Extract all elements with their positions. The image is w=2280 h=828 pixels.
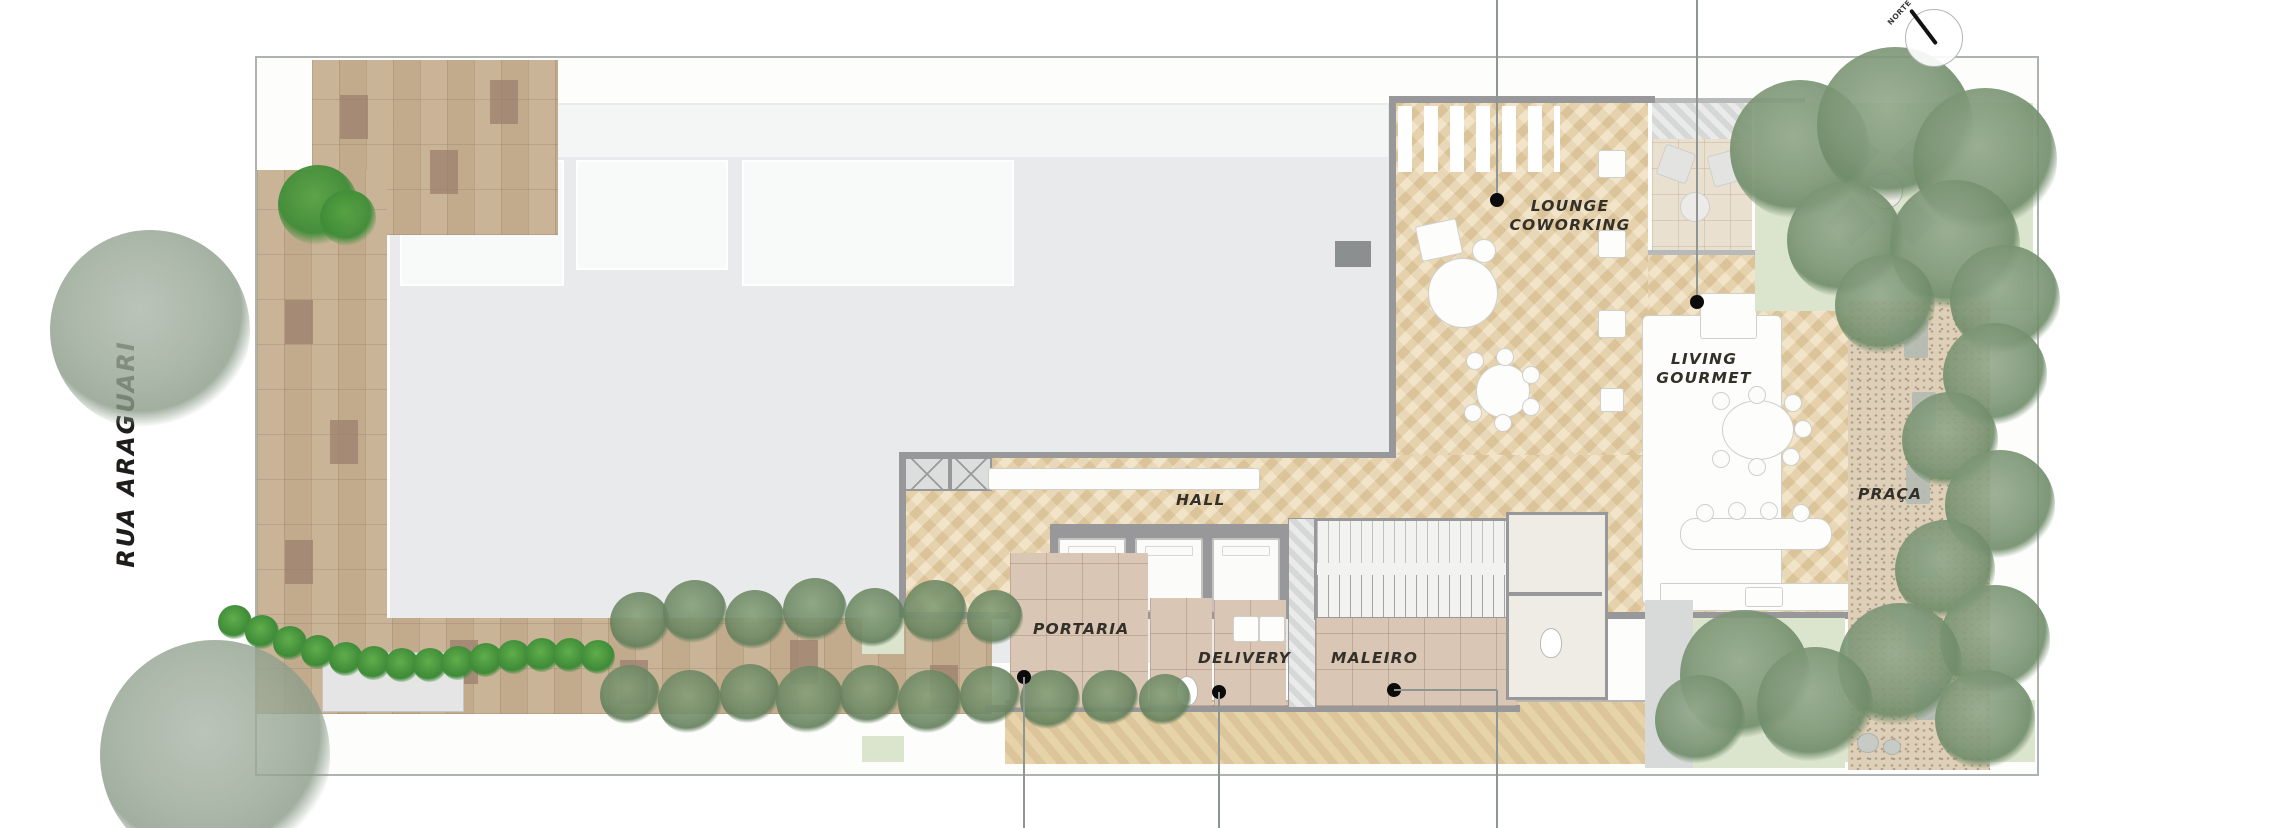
garden-tree — [1835, 255, 1935, 355]
label-living-gourmet: LIVINGGOURMET — [1645, 350, 1763, 388]
elevator-shaft — [1288, 518, 1316, 708]
chair — [1522, 366, 1540, 384]
lawn-patch — [862, 736, 904, 762]
hall-bench — [988, 468, 1260, 490]
paver-accent — [430, 150, 458, 194]
tree-row — [960, 666, 1020, 726]
console-table — [1700, 293, 1757, 339]
chair — [1782, 448, 1800, 466]
label-maleiro: MALEIRO — [1331, 649, 1418, 668]
paver-accent — [285, 540, 313, 584]
tree-row — [663, 580, 727, 644]
leader-line-portaria — [1023, 677, 1025, 828]
label-portaria: PORTARIA — [1033, 620, 1129, 639]
leader-line-living — [1696, 0, 1698, 302]
shaft-box — [904, 457, 950, 491]
wall-lounge-left — [1389, 96, 1396, 458]
stair-flight-upper — [1317, 521, 1513, 563]
tree-row — [600, 665, 660, 725]
terrace-table — [1680, 192, 1710, 222]
tree-row — [610, 592, 670, 652]
garden-tree — [1757, 647, 1873, 763]
lounge-rug — [1428, 258, 1498, 328]
staircase — [1314, 518, 1516, 620]
label-delivery: DELIVERY — [1198, 649, 1291, 668]
label-lounge-line2: COWORKING — [1509, 216, 1630, 234]
shaft-box — [950, 457, 992, 491]
chair — [1464, 404, 1482, 422]
stool — [1696, 504, 1714, 522]
garden-tree — [1935, 670, 2035, 770]
tree-row — [1082, 670, 1138, 726]
tree-row — [725, 590, 785, 650]
paver-accent — [285, 300, 313, 344]
marker-dot-lounge — [1490, 193, 1504, 207]
toilet — [1540, 628, 1562, 658]
site-plan: RUA ARAGUARI — [0, 0, 2280, 828]
bush — [320, 190, 376, 246]
shelf-unit — [1600, 388, 1624, 412]
boulder — [1883, 739, 1901, 755]
hedge — [581, 640, 615, 674]
stool — [1728, 502, 1746, 520]
marker-dot-living — [1690, 295, 1704, 309]
label-praca: PRAÇA — [1858, 485, 1922, 504]
shelf-unit — [1598, 150, 1626, 178]
label-hall: HALL — [1176, 491, 1226, 510]
chair — [1522, 398, 1540, 416]
chair — [1748, 386, 1766, 404]
delivery-locker — [1233, 616, 1259, 642]
tree-row — [903, 580, 967, 644]
label-living-line1: LIVING — [1671, 350, 1737, 368]
label-living-line2: GOURMET — [1656, 369, 1751, 387]
chair — [1466, 352, 1484, 370]
paver-accent — [330, 420, 358, 464]
paver-accent — [490, 80, 518, 124]
leader-line-maleiro-h — [1394, 689, 1497, 691]
roof-panel — [742, 160, 1014, 286]
tree-row — [1139, 674, 1191, 726]
tree-row — [783, 578, 847, 642]
leader-line-maleiro-v — [1496, 690, 1498, 828]
tree-row — [967, 590, 1023, 646]
label-lounge-coworking: LOUNGECOWORKING — [1505, 197, 1635, 235]
tree-row — [840, 665, 900, 725]
wall-lounge-top — [1389, 96, 1655, 103]
tree-row — [720, 664, 780, 724]
chair — [1794, 420, 1812, 438]
street-tree — [50, 230, 250, 430]
chair — [1712, 450, 1730, 468]
chair — [1496, 348, 1514, 366]
chair — [1784, 394, 1802, 412]
slab-vent-block — [1335, 241, 1371, 267]
label-lounge-line1: LOUNGE — [1531, 197, 1610, 215]
pergola-slats — [1398, 106, 1560, 172]
pcd-bathroom — [1506, 512, 1608, 700]
tree-row — [898, 670, 962, 734]
stool — [1792, 504, 1810, 522]
leader-line-lounge — [1496, 0, 1498, 200]
bathroom-divider — [1506, 592, 1602, 596]
stool — [1760, 502, 1778, 520]
tree-row — [776, 666, 844, 734]
kitchen-sink — [1745, 587, 1783, 607]
high-table — [1680, 518, 1832, 550]
garden-tree — [1655, 675, 1745, 765]
chair — [1494, 414, 1512, 432]
delivery-locker — [1259, 616, 1285, 642]
paver-accent — [340, 95, 368, 139]
tree-row — [658, 670, 722, 734]
shelf-unit — [1598, 310, 1626, 338]
leader-line-delivery — [1218, 692, 1220, 828]
stair-flight-lower — [1317, 575, 1513, 617]
roof-panel — [576, 160, 728, 270]
chair — [1712, 392, 1730, 410]
chair — [1748, 458, 1766, 476]
tree-row — [845, 588, 905, 648]
